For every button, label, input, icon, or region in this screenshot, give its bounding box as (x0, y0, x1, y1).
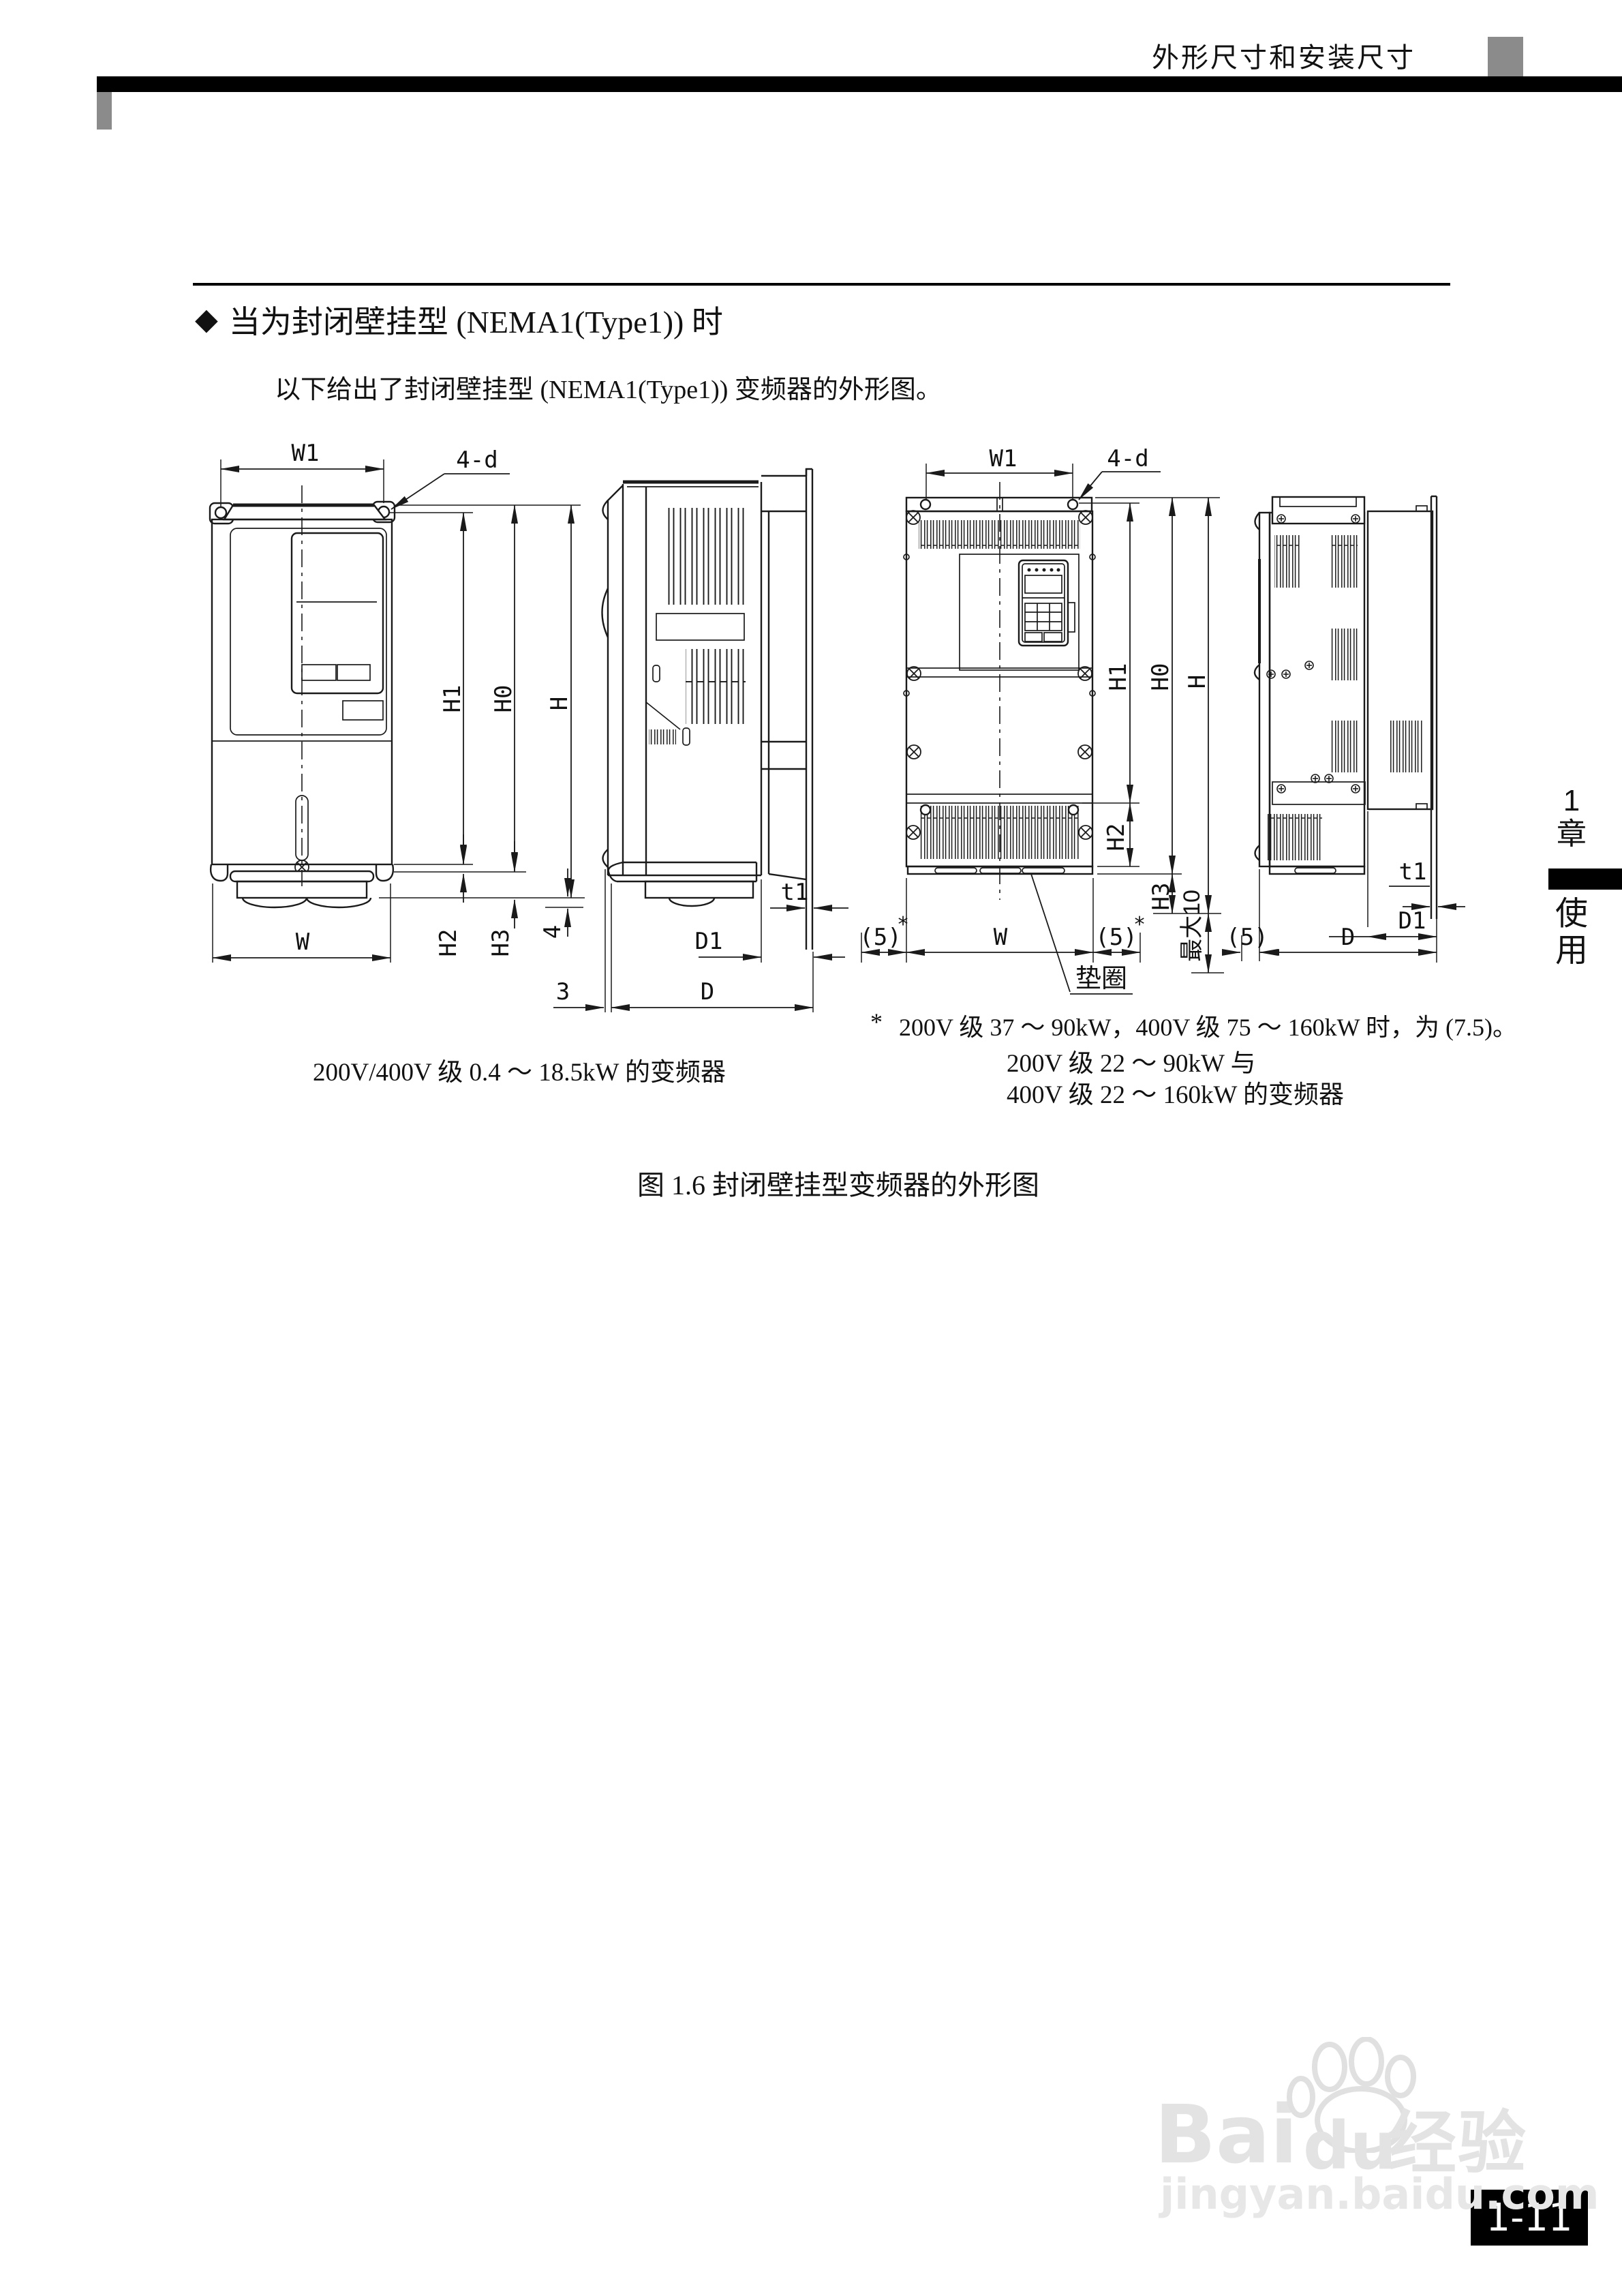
dim-label-h2: H2 (435, 929, 462, 957)
chapter-marker: 1 章 (1546, 784, 1597, 851)
chapter-tab-bar (1548, 868, 1622, 890)
chapter-char: 章 (1546, 817, 1597, 851)
dim-label-h3: H3 (1148, 883, 1175, 911)
dim-label-t1: t1 (1399, 858, 1427, 886)
dim-label-4d: 4-d (456, 447, 498, 474)
dim-label-d: D (701, 978, 714, 1006)
figure-caption: 图 1.6 封闭壁挂型变频器的外形图 (600, 1163, 1077, 1203)
baidu-watermark: Bai du 经验 jingyan.baidu.com (1154, 2045, 1536, 2222)
left-front-view (210, 485, 395, 907)
chapter-usage-label: 使 用 (1546, 896, 1597, 969)
right-front-view (904, 482, 1095, 900)
footnote: * 200V 级 37 ～ 90kW，400V 级 75 ～ 160kW 时，为… (870, 1008, 1517, 1043)
watermark-bai: Bai (1154, 2087, 1298, 2181)
right-side-view (1255, 496, 1437, 919)
dim-label-h0: H0 (490, 685, 517, 713)
dim-label-h: H (1184, 675, 1211, 689)
right-drawing-caption-line1: 200V 级 22 ～ 90kW 与 (1007, 1048, 1344, 1080)
usage-char-2: 用 (1546, 933, 1597, 969)
dim-label-h: H (546, 697, 573, 710)
left-drawing-caption: 200V/400V 级 0.4 ～ 18.5kW 的变频器 (213, 1051, 826, 1088)
dim-label-h2: H2 (1103, 824, 1130, 851)
footnote-marker: * (870, 1008, 883, 1043)
dim-label-w1: W1 (292, 440, 320, 467)
dim-label-3: 3 (556, 978, 570, 1006)
dim-label-5-side: (5) (1226, 924, 1268, 951)
watermark-url: jingyan.baidu.com (1160, 2169, 1599, 2219)
figure-drawing: W1 4-d H1 H0 H H2 H3 4 (0, 0, 1622, 2296)
left-side-dimensions: t1 D1 3 D (553, 869, 848, 1012)
dim-label-d1: D1 (1398, 907, 1426, 935)
dim-label-h1: H1 (439, 685, 466, 713)
dim-label-4: 4 (539, 925, 566, 939)
dim-label-h1: H1 (1105, 663, 1132, 691)
dim-label-5-right: (5) (1095, 924, 1137, 951)
dim-label-star-left: * (897, 913, 909, 937)
left-side-view (602, 469, 813, 950)
washer-label: 垫圈 (1075, 965, 1127, 993)
dim-label-star-right: * (1133, 913, 1146, 937)
dim-label-w: W (994, 924, 1008, 951)
dim-label-h3: H3 (487, 929, 515, 957)
dim-label-h0: H0 (1147, 663, 1174, 691)
dim-label-max10: 最大10 (1179, 890, 1205, 962)
dim-label-t1: t1 (781, 879, 809, 906)
chapter-number: 1 (1546, 784, 1597, 817)
dim-label-w: W (296, 928, 310, 956)
right-drawing-caption-line2: 400V 级 22 ～ 160kW 的变频器 (1007, 1080, 1344, 1111)
dim-label-d1: D1 (695, 928, 723, 955)
right-drawing-caption: 200V 级 22 ～ 90kW 与 400V 级 22 ～ 160kW 的变频… (1007, 1048, 1344, 1111)
dim-label-4d: 4-d (1107, 445, 1148, 472)
dim-label-w1: W1 (990, 445, 1017, 472)
usage-char-1: 使 (1546, 896, 1597, 933)
dim-label-d: D (1341, 924, 1355, 951)
dim-label-5-left: (5) (859, 924, 901, 951)
manual-page: 外形尺寸和安装尺寸 ◆ 当为封闭壁挂型 (NEMA1(Type1)) 时 以下给… (0, 0, 1622, 2296)
footnote-text: 200V 级 37 ～ 90kW，400V 级 75 ～ 160kW 时，为 (… (899, 1008, 1517, 1043)
